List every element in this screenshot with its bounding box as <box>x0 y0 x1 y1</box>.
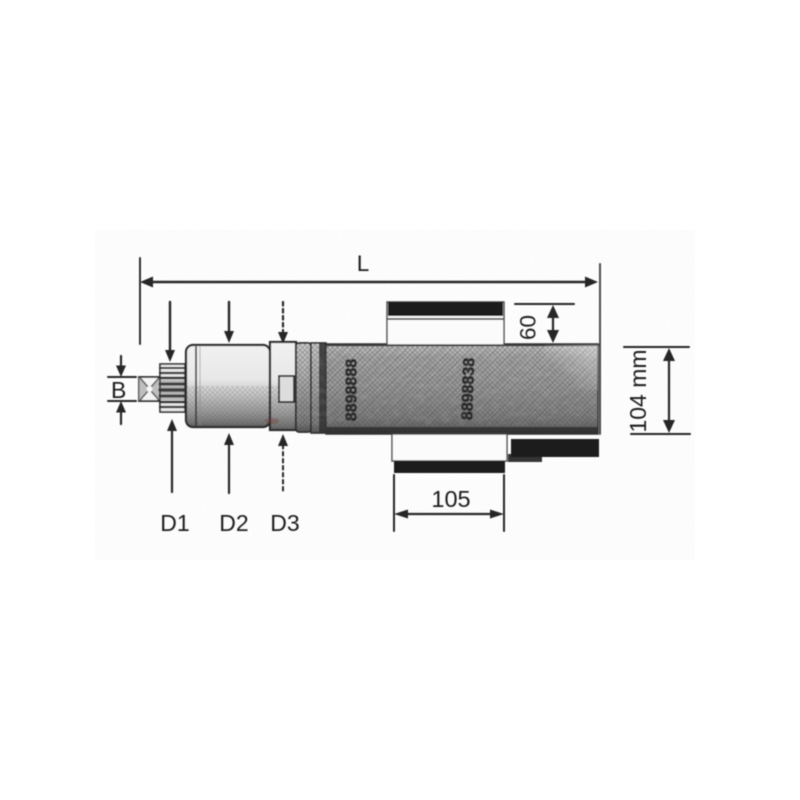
svg-text:D1: D1 <box>160 510 189 536</box>
svg-text:60: 60 <box>515 315 540 340</box>
svg-text:L: L <box>357 251 370 276</box>
svg-text:D2: D2 <box>219 510 248 536</box>
svg-text:D3: D3 <box>270 510 299 536</box>
svg-text:104 mm: 104 mm <box>625 349 651 432</box>
svg-text:B: B <box>111 377 126 403</box>
svg-text:105: 105 <box>431 486 470 512</box>
